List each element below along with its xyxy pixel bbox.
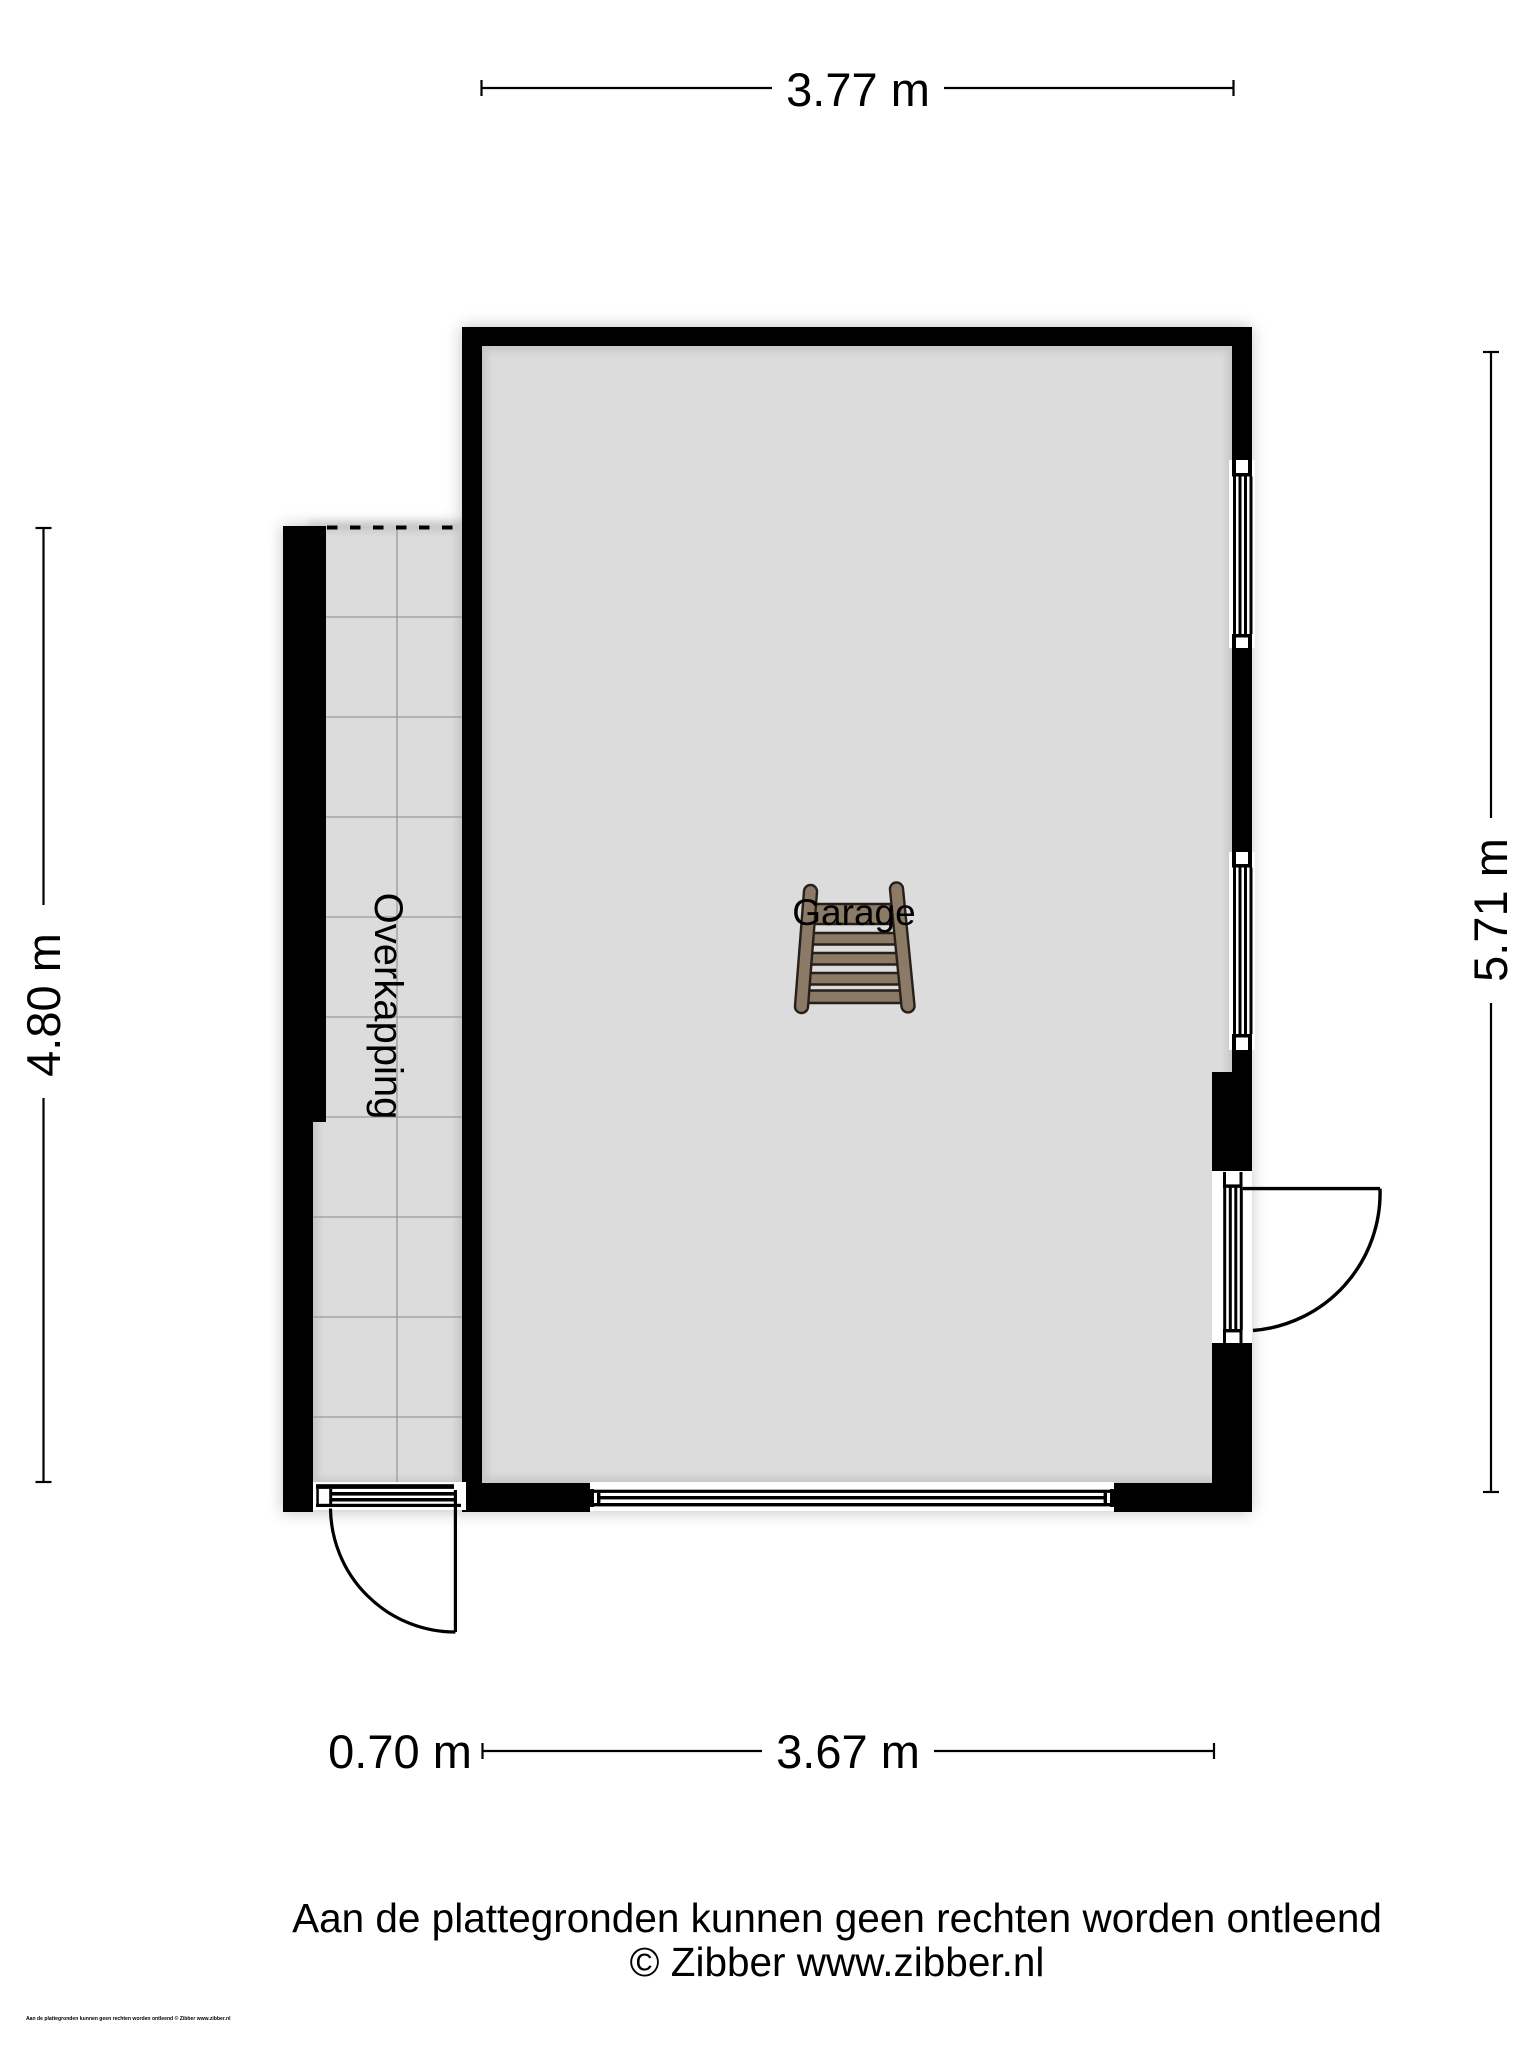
svg-text:3.77 m: 3.77 m <box>786 63 930 116</box>
svg-text:Garage: Garage <box>792 892 915 933</box>
svg-text:Aan de plattegronden kunnen ge: Aan de plattegronden kunnen geen rechten… <box>292 1895 1382 1941</box>
svg-text:© Zibber www.zibber.nl: © Zibber www.zibber.nl <box>630 1939 1045 1985</box>
svg-text:Aan de plattegronden kunnen ge: Aan de plattegronden kunnen geen rechten… <box>26 2015 231 2022</box>
svg-text:0.70 m: 0.70 m <box>328 1725 472 1778</box>
svg-text:Overkapping: Overkapping <box>366 893 410 1120</box>
svg-text:5.71 m: 5.71 m <box>1464 838 1517 982</box>
svg-text:4.80 m: 4.80 m <box>17 933 70 1077</box>
svg-text:3.67 m: 3.67 m <box>776 1725 920 1778</box>
